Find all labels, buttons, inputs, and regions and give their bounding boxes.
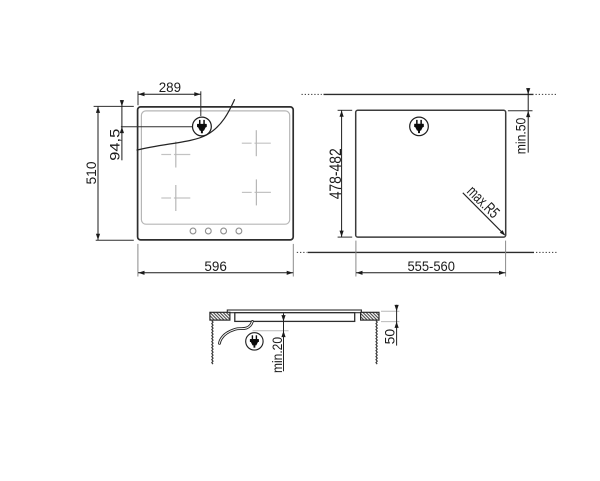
svg-text:478-482: 478-482 xyxy=(326,148,345,199)
svg-text:min.20: min.20 xyxy=(269,337,285,373)
svg-text:94,5: 94,5 xyxy=(107,129,123,161)
svg-text:289: 289 xyxy=(159,79,182,95)
svg-text:510: 510 xyxy=(83,161,99,184)
svg-text:50: 50 xyxy=(381,329,397,345)
svg-text:596: 596 xyxy=(204,258,227,274)
svg-text:555-560: 555-560 xyxy=(407,258,455,274)
svg-text:min.50: min.50 xyxy=(513,118,529,155)
